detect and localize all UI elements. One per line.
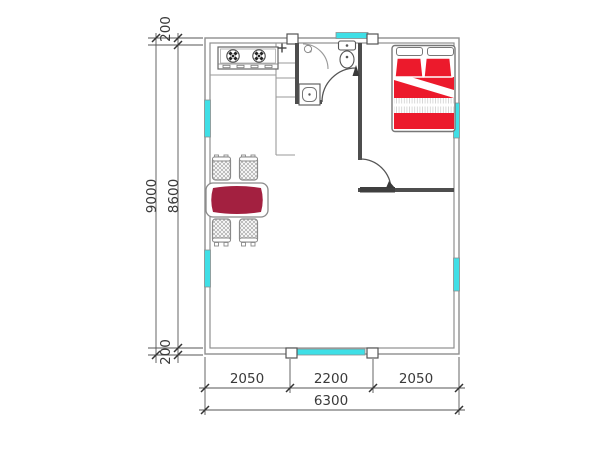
dimension-label-wall-bottom: 200 (158, 339, 174, 365)
dimension-label-bottom-left: 2050 (230, 371, 264, 387)
window-icon (295, 349, 365, 355)
wall-post (367, 34, 378, 44)
window-icon (205, 250, 211, 287)
headboard-cushion (428, 48, 454, 56)
floor-drain-icon (304, 45, 311, 52)
floor-plan-drawing: 9000 8600 200 200 2050 2200 2050 6300 (0, 0, 600, 450)
table-top (211, 186, 263, 214)
pillow-icon (395, 58, 423, 77)
chair-icon (213, 155, 231, 180)
chair-icon (240, 219, 258, 246)
pillow-icon (424, 58, 452, 77)
window-icon (336, 33, 368, 39)
bathroom-left-wall (295, 43, 299, 104)
bathroom-door-swing-arc-icon (322, 68, 356, 102)
dining-table-icon (206, 183, 268, 217)
burner-icon (227, 50, 239, 62)
window-icon (454, 258, 460, 291)
dimension-label-bottom-right: 2050 (399, 371, 433, 387)
bedroom-door-swing-arc-icon (360, 159, 391, 190)
headboard-cushion (397, 48, 423, 56)
floor-plan-canvas: 9000 8600 200 200 2050 2200 2050 6300 (0, 0, 600, 450)
wall-posts (286, 34, 378, 358)
dimension-label-overall-height: 9000 (144, 179, 160, 213)
kitchen (210, 43, 295, 155)
double-bed-icon (392, 46, 455, 132)
dimension-label-overall-width: 6300 (314, 393, 348, 409)
bathroom (299, 41, 356, 105)
dimension-label-wall-top: 200 (158, 16, 174, 42)
chair-icon (213, 219, 231, 246)
dimension-label-interior-height: 8600 (166, 179, 182, 213)
burner-icon (253, 50, 265, 62)
bathroom-right-wall (358, 43, 362, 160)
faucet-cross-icon (278, 44, 287, 53)
toilet-icon (339, 41, 356, 68)
chair-icon (240, 155, 258, 180)
washbasin-icon (299, 84, 320, 105)
dimension-label-bottom-middle: 2200 (314, 371, 348, 387)
blanket-texture (394, 98, 454, 113)
wall-post (287, 34, 298, 44)
wall-post (367, 348, 378, 358)
dining-set (206, 155, 268, 246)
wall-post (286, 348, 297, 358)
stove-icon (218, 47, 278, 69)
window-icon (205, 100, 211, 137)
